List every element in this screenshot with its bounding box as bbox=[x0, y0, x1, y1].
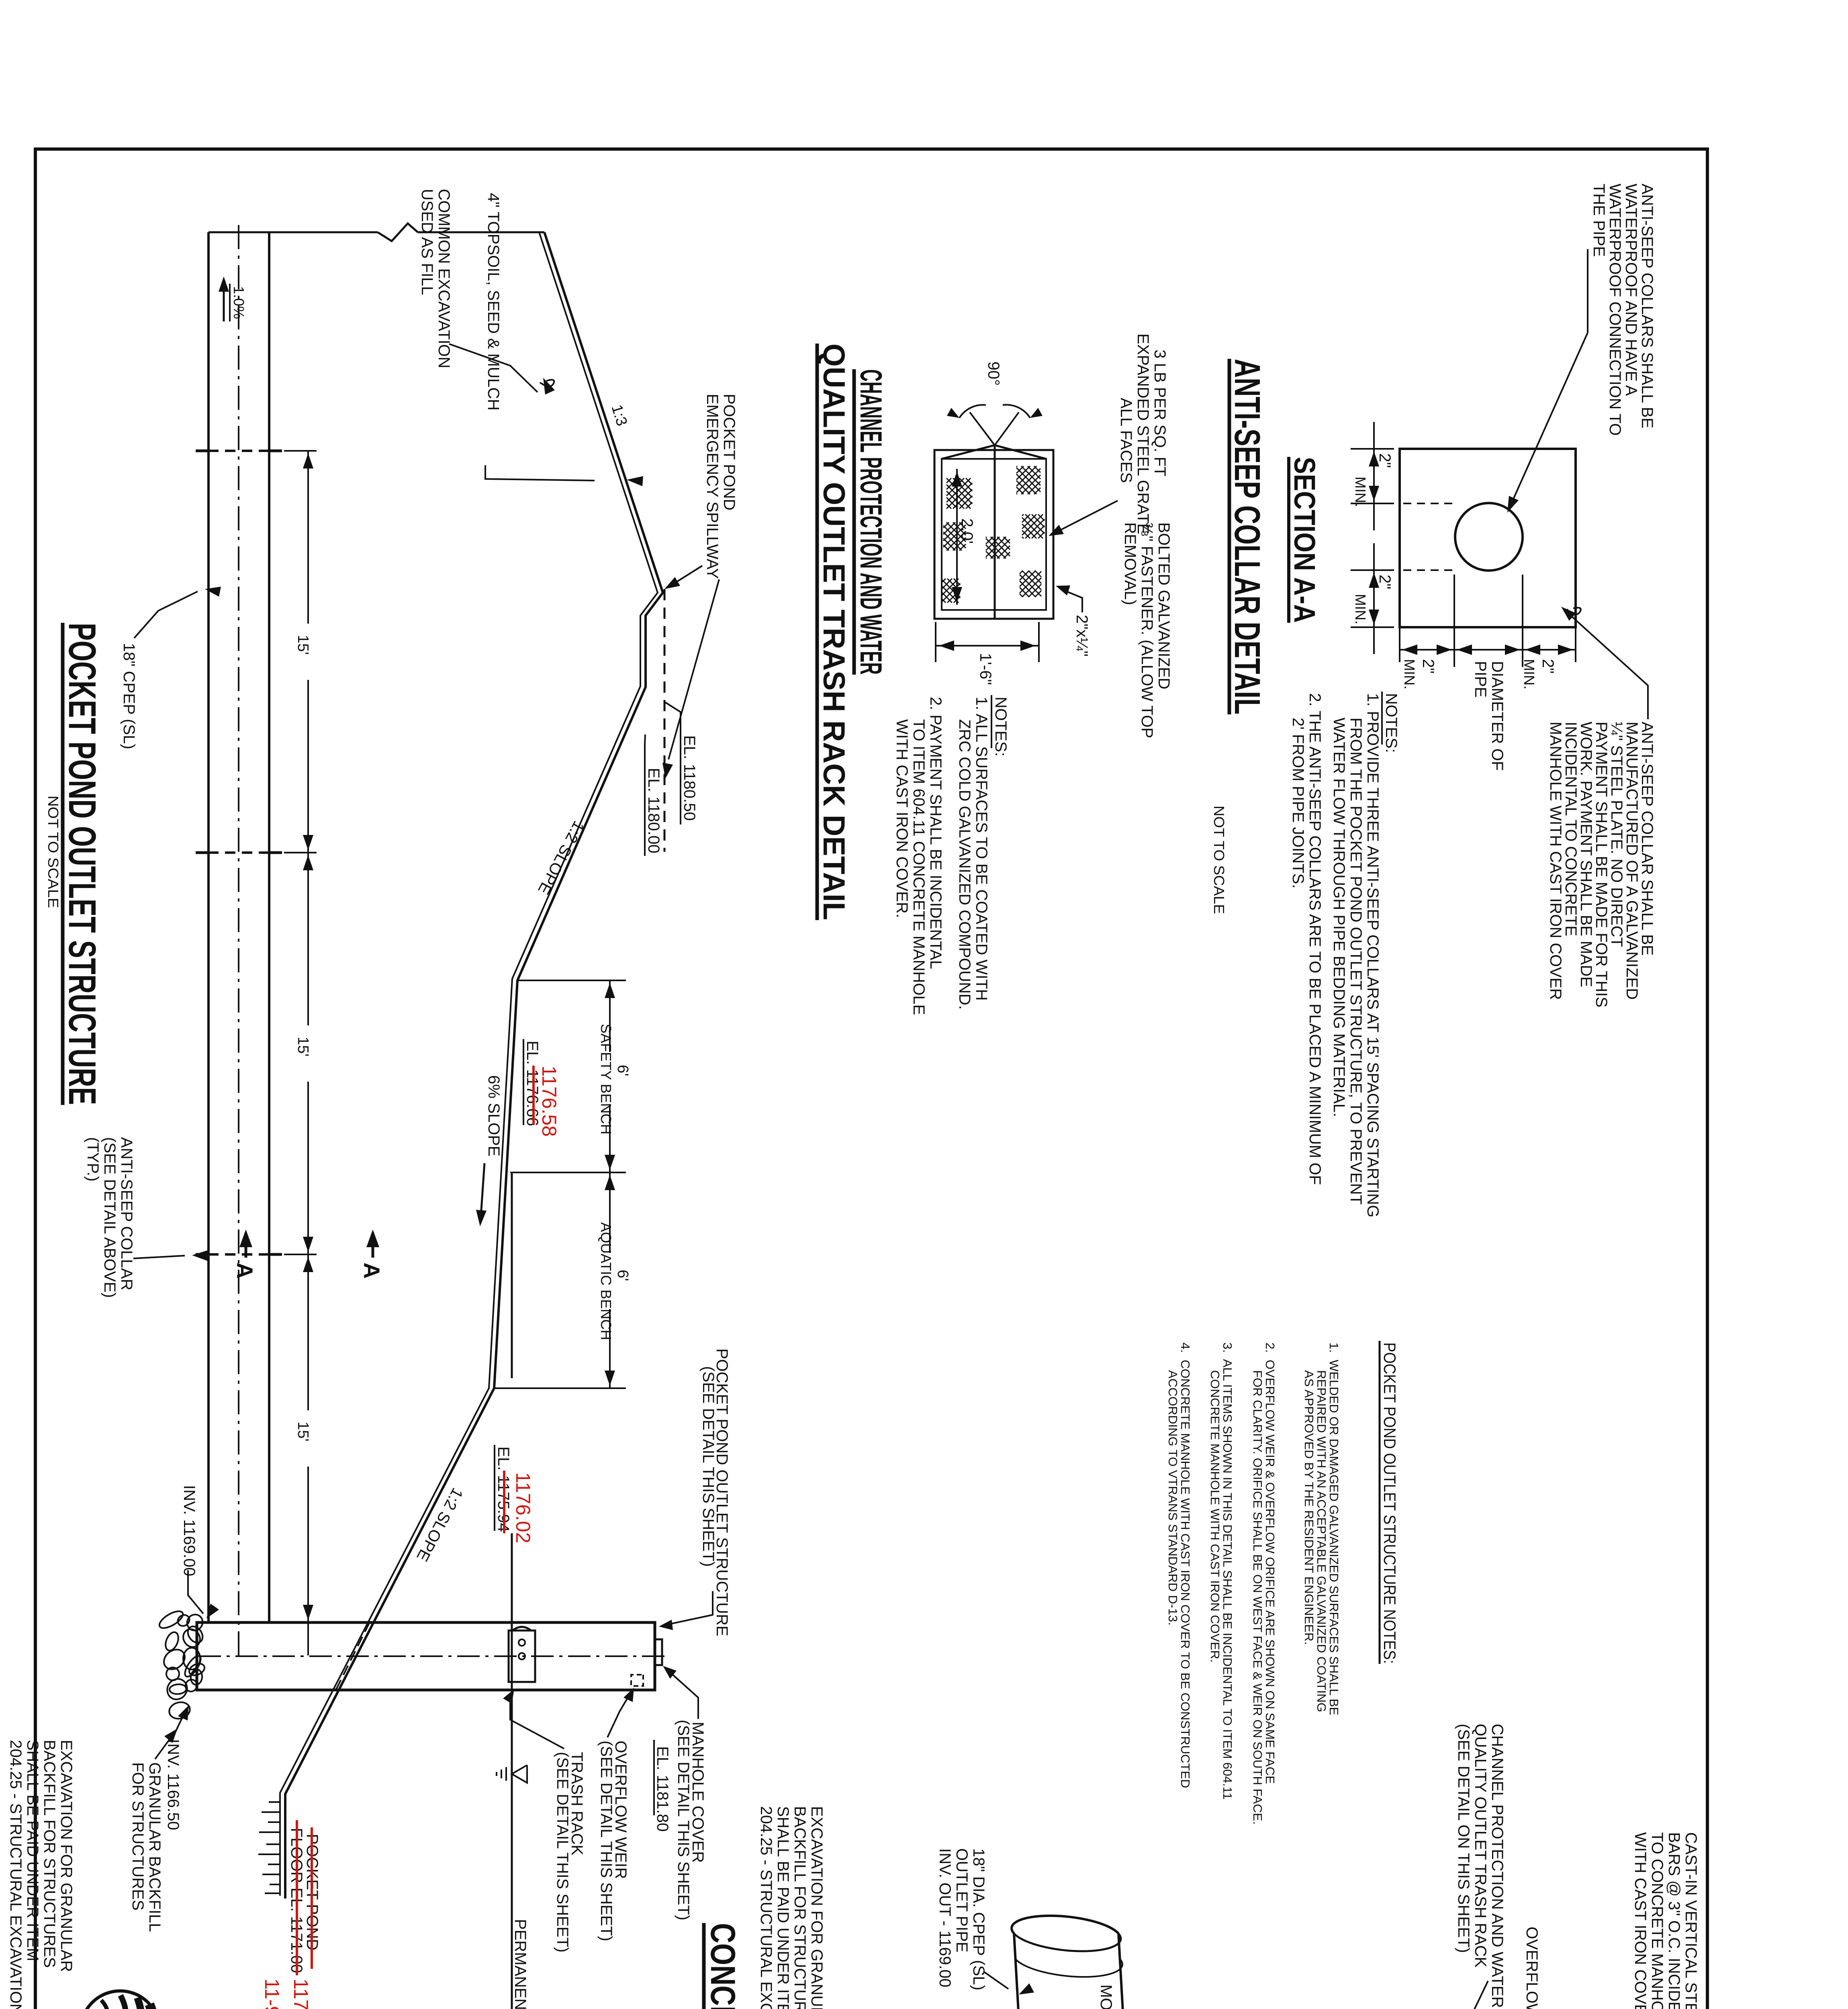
svg-text:CHANNEL PROTECTION AND WATER: CHANNEL PROTECTION AND WATER bbox=[1488, 1724, 1506, 2008]
svg-text:1. PROVIDE THREE ANTI-SEEP COL: 1. PROVIDE THREE ANTI-SEEP COLLARS AT 15… bbox=[1364, 693, 1382, 1217]
svg-text:INV. 1169.00: INV. 1169.00 bbox=[180, 1485, 198, 1576]
svg-text:1173.00 AS PER STANTEC: 1173.00 AS PER STANTEC bbox=[290, 1978, 312, 2009]
svg-text:USED AS FILL: USED AS FILL bbox=[418, 189, 436, 295]
svg-text:6% SLOPE: 6% SLOPE bbox=[485, 1075, 503, 1156]
svg-text:2"x¼": 2"x¼" bbox=[1073, 615, 1091, 657]
svg-text:INV. 1166.50: INV. 1166.50 bbox=[164, 1739, 182, 1830]
svg-text:EL. 1180.50: EL. 1180.50 bbox=[681, 735, 698, 821]
svg-text:3. ALL ITEMS SHOWN IN THIS DE: 3. ALL ITEMS SHOWN IN THIS DETAIL SHALL … bbox=[1220, 1342, 1235, 1800]
svg-text:POCKET POND OUTLET STRUCTURE N: POCKET POND OUTLET STRUCTURE NOTES: bbox=[1380, 1342, 1399, 1664]
svg-text:¼" STEEL PLATE. NO DIRECT: ¼" STEEL PLATE. NO DIRECT bbox=[1608, 722, 1625, 947]
svg-text:6': 6' bbox=[614, 1065, 631, 1076]
svg-text:(SEE DETAIL THIS SHEET): (SEE DETAIL THIS SHEET) bbox=[597, 1741, 615, 1941]
svg-text:2. PAYMENT SHALL BE INCIDENTAL: 2. PAYMENT SHALL BE INCIDENTAL bbox=[927, 697, 944, 969]
svg-text:A: A bbox=[359, 1262, 384, 1279]
svg-text:QUALITY OUTLET TRASH RACK: QUALITY OUTLET TRASH RACK bbox=[1472, 1724, 1489, 1968]
svg-text:NOT TO SCALE: NOT TO SCALE bbox=[45, 796, 61, 908]
svg-text:ALL FACES: ALL FACES bbox=[1117, 398, 1135, 483]
svg-text:MANUFACTURED OF A GALVANIZED: MANUFACTURED OF A GALVANIZED bbox=[1623, 722, 1641, 1000]
svg-text:EMERGENCY SPILLWAY: EMERGENCY SPILLWAY bbox=[703, 394, 721, 579]
svg-text:SECTION A-A: SECTION A-A bbox=[1288, 457, 1321, 623]
svg-text:A: A bbox=[232, 1262, 258, 1279]
svg-text:ANTI-SEEP COLLAR DETAIL: ANTI-SEEP COLLAR DETAIL bbox=[1227, 359, 1267, 714]
svg-text:EL. 1180.00: EL. 1180.00 bbox=[645, 768, 662, 853]
svg-text:INCIDENTAL TO CONCRETE: INCIDENTAL TO CONCRETE bbox=[1562, 722, 1580, 936]
svg-text:PERMANENT POOL EL. 1176.30: PERMANENT POOL EL. 1176.30 bbox=[511, 1919, 529, 2009]
svg-text:NOTES:: NOTES: bbox=[1382, 693, 1400, 753]
svg-text:MIN.: MIN. bbox=[1352, 594, 1369, 624]
svg-text:QUALITY OUTLET TRASH RACK DETA: QUALITY OUTLET TRASH RACK DETAIL bbox=[817, 344, 851, 920]
svg-text:2. OVERFLOW WEIR & OVERFLOW O: 2. OVERFLOW WEIR & OVERFLOW ORIFICE ARE … bbox=[1263, 1342, 1277, 1784]
svg-text:WATERPROOF CONNECTION TO: WATERPROOF CONNECTION TO bbox=[1606, 184, 1624, 436]
svg-text:ZRC COLD GALVANIZED COMPOUND.: ZRC COLD GALVANIZED COMPOUND. bbox=[956, 719, 973, 1010]
svg-text:(SEE DETAIL THIS SHEET): (SEE DETAIL THIS SHEET) bbox=[675, 1720, 692, 1920]
svg-text:1. ALL SURFACES TO BE COATED W: 1. ALL SURFACES TO BE COATED WITH bbox=[973, 697, 990, 1000]
svg-text:BACKFILL FOR STRUCTURES: BACKFILL FOR STRUCTURES bbox=[41, 1740, 58, 1968]
svg-text:MIN.: MIN. bbox=[1352, 477, 1369, 507]
svg-text:1'-6": 1'-6" bbox=[977, 653, 994, 685]
svg-text:15': 15' bbox=[294, 1037, 311, 1057]
svg-text:FOR STRUCTURES: FOR STRUCTURES bbox=[129, 1762, 147, 1911]
svg-text:TO ITEM 604.11 CONCRETE MANHOL: TO ITEM 604.11 CONCRETE MANHOLE bbox=[910, 719, 928, 1015]
svg-text:AS APPROVED BY THE RESIDENT EN: AS APPROVED BY THE RESIDENT ENGINEER. bbox=[1302, 1370, 1316, 1645]
svg-text:EXPANDED STEEL GRATE: EXPANDED STEEL GRATE bbox=[1134, 333, 1152, 534]
svg-text:TO CONCRETE MANHOLE: TO CONCRETE MANHOLE bbox=[1648, 1832, 1666, 2009]
svg-text:MANHOLE WITH CAST IRON COVER: MANHOLE WITH CAST IRON COVER bbox=[1547, 722, 1564, 1000]
svg-text:WITH CAST IRON COVER: WITH CAST IRON COVER bbox=[1631, 1832, 1649, 2009]
svg-text:3 LB PER SQ. FT: 3 LB PER SQ. FT bbox=[1151, 350, 1169, 477]
svg-text:BARS @ 3" O.C. INCIDENTAL: BARS @ 3" O.C. INCIDENTAL bbox=[1665, 1832, 1683, 2009]
svg-text:ANTI-SEEP COLLAR SHALL BE: ANTI-SEEP COLLAR SHALL BE bbox=[1638, 722, 1656, 955]
svg-text:NOT TO SCALE: NOT TO SCALE bbox=[1211, 806, 1227, 914]
svg-text:PIPE: PIPE bbox=[1472, 661, 1489, 698]
svg-text:1. WELDED OR DAMAGED GALVANIZ: 1. WELDED OR DAMAGED GALVANIZED SURFACES… bbox=[1327, 1342, 1341, 1715]
svg-text:1.0%: 1.0% bbox=[231, 286, 247, 319]
svg-text:1176.58: 1176.58 bbox=[538, 1066, 560, 1137]
svg-text:COMMON EXCAVATION: COMMON EXCAVATION bbox=[435, 189, 453, 368]
svg-text:4" TOPSOIL, SEED & MULCH: 4" TOPSOIL, SEED & MULCH bbox=[484, 193, 502, 411]
svg-text:BACKFILL FOR STRUCTURES: BACKFILL FOR STRUCTURES bbox=[791, 1806, 809, 2009]
svg-text:90°: 90° bbox=[985, 362, 1002, 386]
svg-text:BOLTED GALVANIZED: BOLTED GALVANIZED bbox=[1155, 522, 1173, 689]
svg-text:WORK. PAYMENT SHALL BE MADE: WORK. PAYMENT SHALL BE MADE bbox=[1577, 722, 1595, 987]
svg-text:18" DIA. CPEP (SL): 18" DIA. CPEP (SL) bbox=[970, 1848, 987, 1991]
svg-text:2.0': 2.0' bbox=[958, 518, 976, 544]
svg-text:SAFETY BENCH: SAFETY BENCH bbox=[598, 1024, 614, 1134]
svg-text:NOTES:: NOTES: bbox=[992, 697, 1010, 757]
svg-text:4. CONCRETE MANHOLE WITH CAST: 4. CONCRETE MANHOLE WITH CAST IRON COVER… bbox=[1178, 1342, 1192, 1788]
svg-text:AQUATIC BENCH: AQUATIC BENCH bbox=[598, 1222, 614, 1340]
svg-text:2. THE ANTI-SEEP COLLARS ARE T: 2. THE ANTI-SEEP COLLARS ARE TO BE PLACE… bbox=[1306, 693, 1324, 1185]
svg-text:REMOVAL): REMOVAL) bbox=[1121, 522, 1139, 605]
svg-text:WATER FLOW THROUGH PIPE BEDDIN: WATER FLOW THROUGH PIPE BEDDING MATERIAL… bbox=[1330, 718, 1348, 1117]
svg-text:POCKET POND OUTLET STRUCTURE: POCKET POND OUTLET STRUCTURE bbox=[61, 623, 104, 1105]
svg-text:1:2 SLOPE: 1:2 SLOPE bbox=[534, 818, 588, 897]
svg-text:2": 2" bbox=[1419, 659, 1437, 673]
svg-text:SHALL BE PAID UNDER ITEM: SHALL BE PAID UNDER ITEM bbox=[774, 1806, 792, 2009]
svg-text:CONCRETE MANHOLE WITH CAST IRO: CONCRETE MANHOLE WITH CAST IRON COVER DE… bbox=[703, 1923, 742, 2009]
svg-text:CONCRETE MANHOLE WITH CAST IRO: CONCRETE MANHOLE WITH CAST IRON COVER. bbox=[1208, 1370, 1222, 1663]
svg-text:EXCAVATION FOR GRANULAR: EXCAVATION FOR GRANULAR bbox=[57, 1740, 75, 1972]
svg-text:15': 15' bbox=[294, 635, 311, 655]
svg-text:1:2 SLOPE: 1:2 SLOPE bbox=[413, 1485, 466, 1564]
svg-text:18" CPEP (SL): 18" CPEP (SL) bbox=[120, 643, 138, 749]
svg-text:2": 2" bbox=[1376, 575, 1394, 589]
svg-text:FROM THE POCKET POND OUTLET ST: FROM THE POCKET POND OUTLET STRUCTURE, T… bbox=[1347, 718, 1365, 1205]
svg-text:OVERFLOW WEIR: OVERFLOW WEIR bbox=[1523, 1927, 1541, 2009]
svg-text:2": 2" bbox=[1539, 659, 1557, 673]
svg-text:1176.02: 1176.02 bbox=[512, 1472, 534, 1543]
svg-text:MORTAR: MORTAR bbox=[1097, 1984, 1115, 2009]
svg-text:SHALL BE PAID UNDER ITEM: SHALL BE PAID UNDER ITEM bbox=[24, 1740, 41, 1961]
svg-text:(SEE DETAIL THIS SHEET): (SEE DETAIL THIS SHEET) bbox=[554, 1752, 571, 1952]
svg-text:OUTLET PIPE: OUTLET PIPE bbox=[953, 1848, 971, 1952]
svg-text:FOR CLARITY. ORIFICE SHALL BE: FOR CLARITY. ORIFICE SHALL BE ON WEST FA… bbox=[1251, 1370, 1265, 1825]
svg-text:POCKET POND: POCKET POND bbox=[720, 394, 738, 510]
svg-text:CHANNEL PROTECTION AND WATER: CHANNEL PROTECTION AND WATER bbox=[854, 369, 888, 675]
svg-text:15': 15' bbox=[294, 1422, 311, 1442]
svg-text:1:3: 1:3 bbox=[608, 403, 630, 428]
svg-text:204.25 - STRUCTURAL EXCAVATION: 204.25 - STRUCTURAL EXCAVATION bbox=[7, 1740, 25, 2009]
svg-text:EXCAVATION FOR GRANULAR: EXCAVATION FOR GRANULAR bbox=[808, 1806, 826, 2009]
svg-text:ACCORDING TO VTRANS STANDARD D: ACCORDING TO VTRANS STANDARD D-13. bbox=[1166, 1370, 1180, 1626]
svg-text:ANTI-SEEP COLLAR: ANTI-SEEP COLLAR bbox=[118, 1137, 135, 1291]
svg-text:204.25 - STRUCTURAL EXCAVATION: 204.25 - STRUCTURAL EXCAVATION bbox=[757, 1806, 775, 2009]
svg-text:WITH CAST IRON COVER.: WITH CAST IRON COVER. bbox=[893, 719, 911, 918]
svg-text:(SEE DETAIL ON THIS SHEET): (SEE DETAIL ON THIS SHEET) bbox=[1455, 1724, 1472, 1953]
svg-text:MIN.: MIN. bbox=[1401, 659, 1418, 689]
svg-text:EL. 1181.80: EL. 1181.80 bbox=[654, 1746, 671, 1832]
svg-text:11-9-07: 11-9-07 bbox=[261, 1978, 283, 2009]
svg-text:2' FROM PIPE JOINTS.: 2' FROM PIPE JOINTS. bbox=[1289, 718, 1307, 888]
svg-text:2": 2" bbox=[1376, 453, 1394, 468]
svg-text:⅜" FASTENER. (ALLOW TOP: ⅜" FASTENER. (ALLOW TOP bbox=[1138, 522, 1156, 738]
svg-text:GRANULAR BACKFILL: GRANULAR BACKFILL bbox=[146, 1762, 164, 1932]
svg-text:MIN.: MIN. bbox=[1521, 659, 1537, 689]
svg-text:THE PIPE: THE PIPE bbox=[1590, 184, 1608, 257]
svg-text:6': 6' bbox=[614, 1270, 631, 1281]
svg-text:(TYP.): (TYP.) bbox=[84, 1137, 102, 1181]
svg-text:REPAIRED WITH AN ACCEPTABLE GA: REPAIRED WITH AN ACCEPTABLE GALVANIZED C… bbox=[1314, 1370, 1329, 1712]
svg-text:INV. OUT - 1169.00: INV. OUT - 1169.00 bbox=[936, 1848, 954, 1987]
svg-text:(SEE DETAIL THIS SHEET): (SEE DETAIL THIS SHEET) bbox=[699, 1366, 717, 1567]
svg-text:(SEE DETAIL ABOVE): (SEE DETAIL ABOVE) bbox=[101, 1137, 119, 1298]
svg-text:PAYMENT SHALL BE MADE FOR THIS: PAYMENT SHALL BE MADE FOR THIS bbox=[1592, 722, 1610, 1007]
svg-text:DIAMETER OF: DIAMETER OF bbox=[1488, 661, 1506, 771]
svg-text:ANTI-SEEP COLLARS SHALL BE: ANTI-SEEP COLLARS SHALL BE bbox=[1638, 184, 1656, 428]
svg-text:WATERPROOF AND HAVE A: WATERPROOF AND HAVE A bbox=[1622, 184, 1640, 396]
svg-text:CAST-IN VERTICAL STEEL: CAST-IN VERTICAL STEEL bbox=[1682, 1832, 1700, 2009]
